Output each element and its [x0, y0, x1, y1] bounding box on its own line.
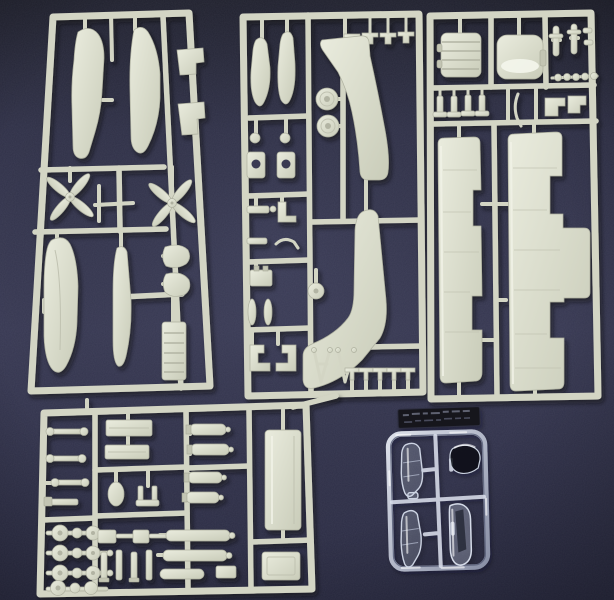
- part-cowl-1: [163, 245, 190, 268]
- part-small-plate: [216, 566, 236, 578]
- part-wing-half-left: [438, 137, 482, 383]
- part-clear-small-pane: [408, 493, 418, 499]
- part-small-box: [262, 552, 300, 580]
- part-oval-fairing: [108, 482, 124, 506]
- maker-tag: [398, 407, 481, 429]
- part-cowl-2: [163, 273, 190, 297]
- part-knob-1: [250, 133, 260, 143]
- part-canopy-long: [449, 504, 472, 566]
- part-pontoon-half-2: [278, 32, 295, 104]
- part-large-panel: [265, 430, 301, 530]
- part-dome-windscreen: [450, 444, 481, 473]
- part-ribbed-hatch: [162, 322, 186, 380]
- part-wheel-1: [316, 88, 338, 110]
- part-radial-engine-block: [437, 33, 481, 77]
- scene-canvas: [0, 0, 614, 600]
- part-knob-2: [280, 133, 290, 143]
- part-engine-cowling: [497, 35, 546, 79]
- photo-model-kit-sprues: [0, 0, 614, 600]
- part-wheel-2: [317, 115, 339, 137]
